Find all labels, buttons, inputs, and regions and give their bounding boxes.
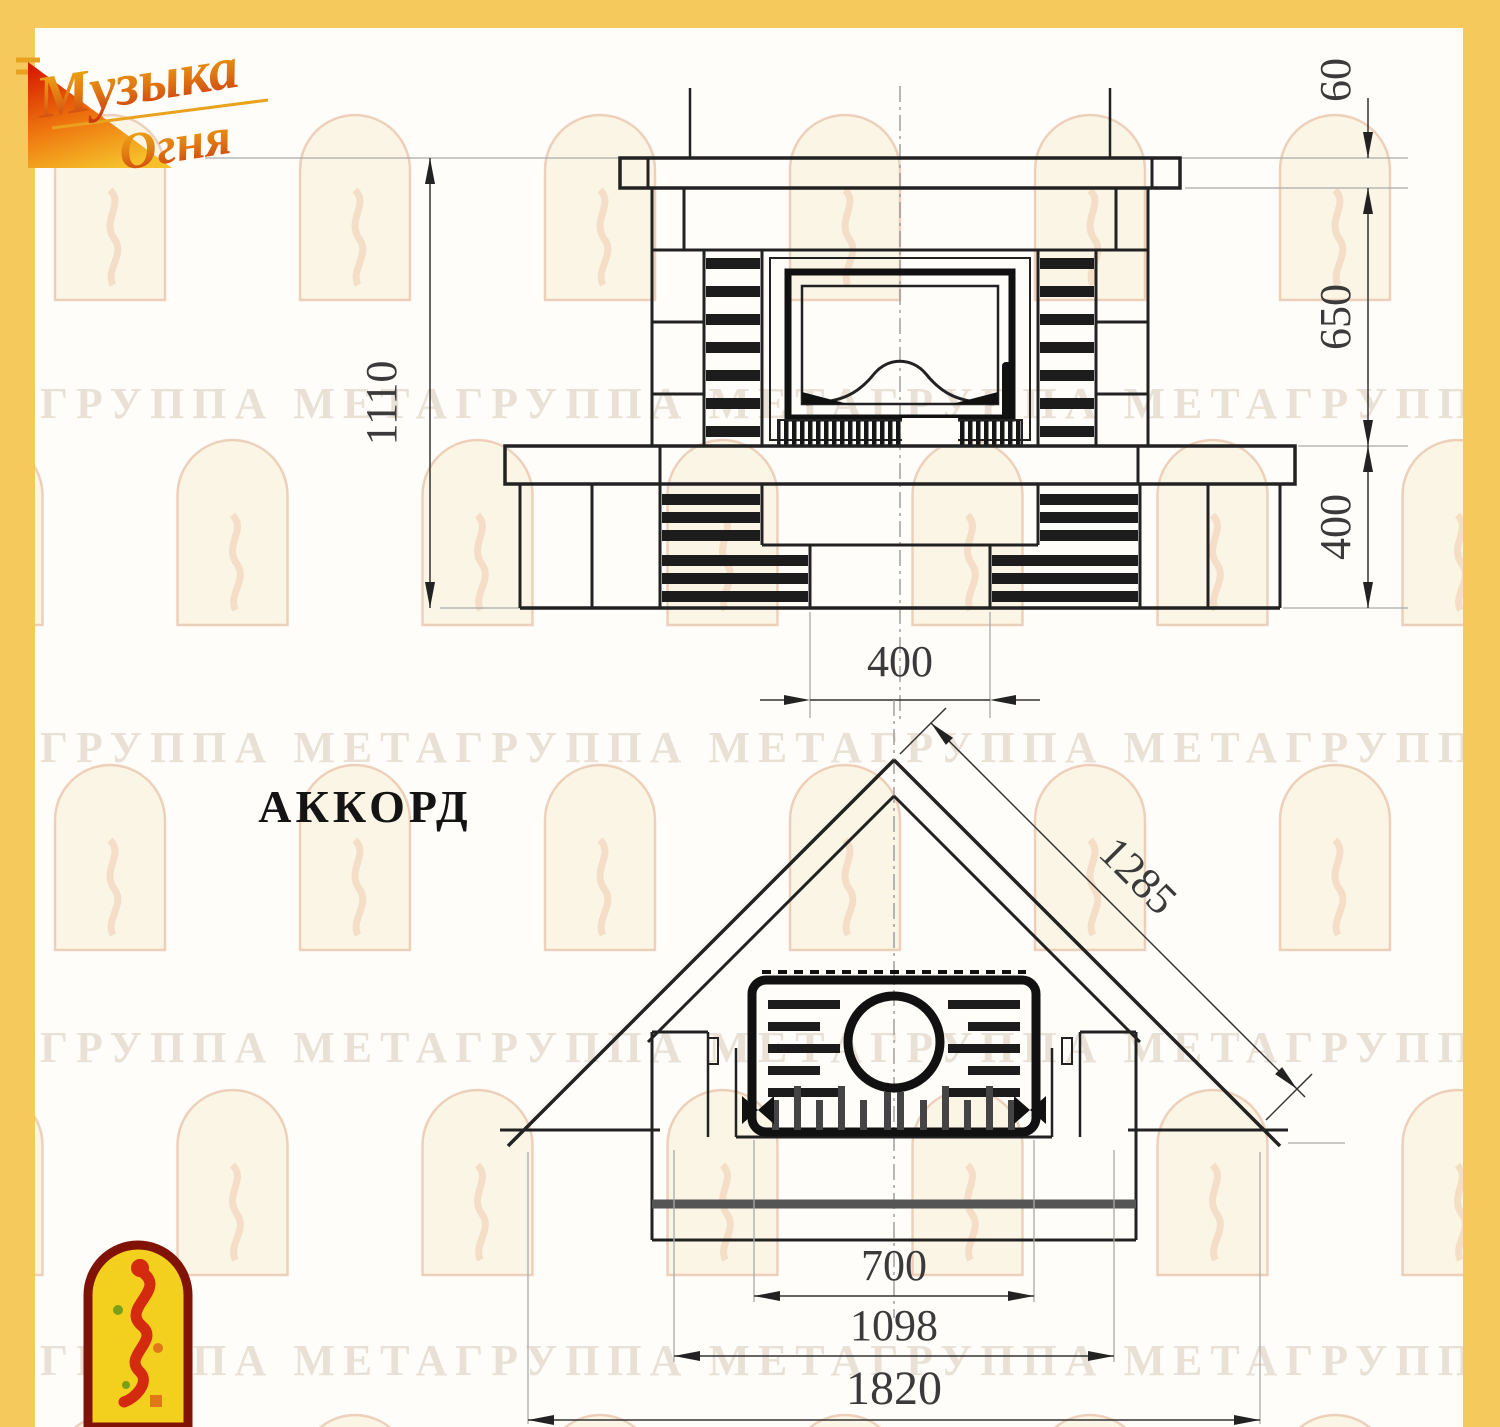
- catalog-page: ГРУППА МЕТАГРУППА МЕТАГРУППА МЕТАГРУППА …: [0, 0, 1500, 1427]
- dim-overall-width: 1820: [846, 1362, 942, 1415]
- watermark-text-row: ГРУППА МЕТАГРУППА МЕТАГРУППА МЕТАГРУППА …: [40, 723, 1500, 772]
- dim-niche-width: 400: [867, 637, 933, 686]
- model-title: АККОРД: [258, 781, 471, 832]
- frame-top: [0, 0, 1500, 28]
- dim-opening-height: 650: [1311, 284, 1360, 350]
- fireplace-technical-drawing: ГРУППА МЕТАГРУППА МЕТАГРУППА МЕТАГРУППА …: [0, 0, 1500, 1427]
- dim-total-height: 1110: [357, 361, 406, 446]
- dim-shelf-thickness: 60: [1311, 58, 1360, 102]
- watermark-text-row: ГРУППА МЕТАГРУППА МЕТАГРУППА МЕТАГРУППА …: [40, 1336, 1500, 1385]
- dim-firebox-width: 700: [861, 1241, 927, 1290]
- door-handle: [1002, 362, 1012, 418]
- frame-left: [0, 0, 35, 1427]
- dim-base-height: 400: [1311, 494, 1360, 560]
- vent-grille: [778, 420, 1022, 446]
- dim-inner-width: 1098: [850, 1301, 938, 1350]
- frame-right: [1463, 0, 1500, 1427]
- corner-emblem: [88, 1245, 188, 1427]
